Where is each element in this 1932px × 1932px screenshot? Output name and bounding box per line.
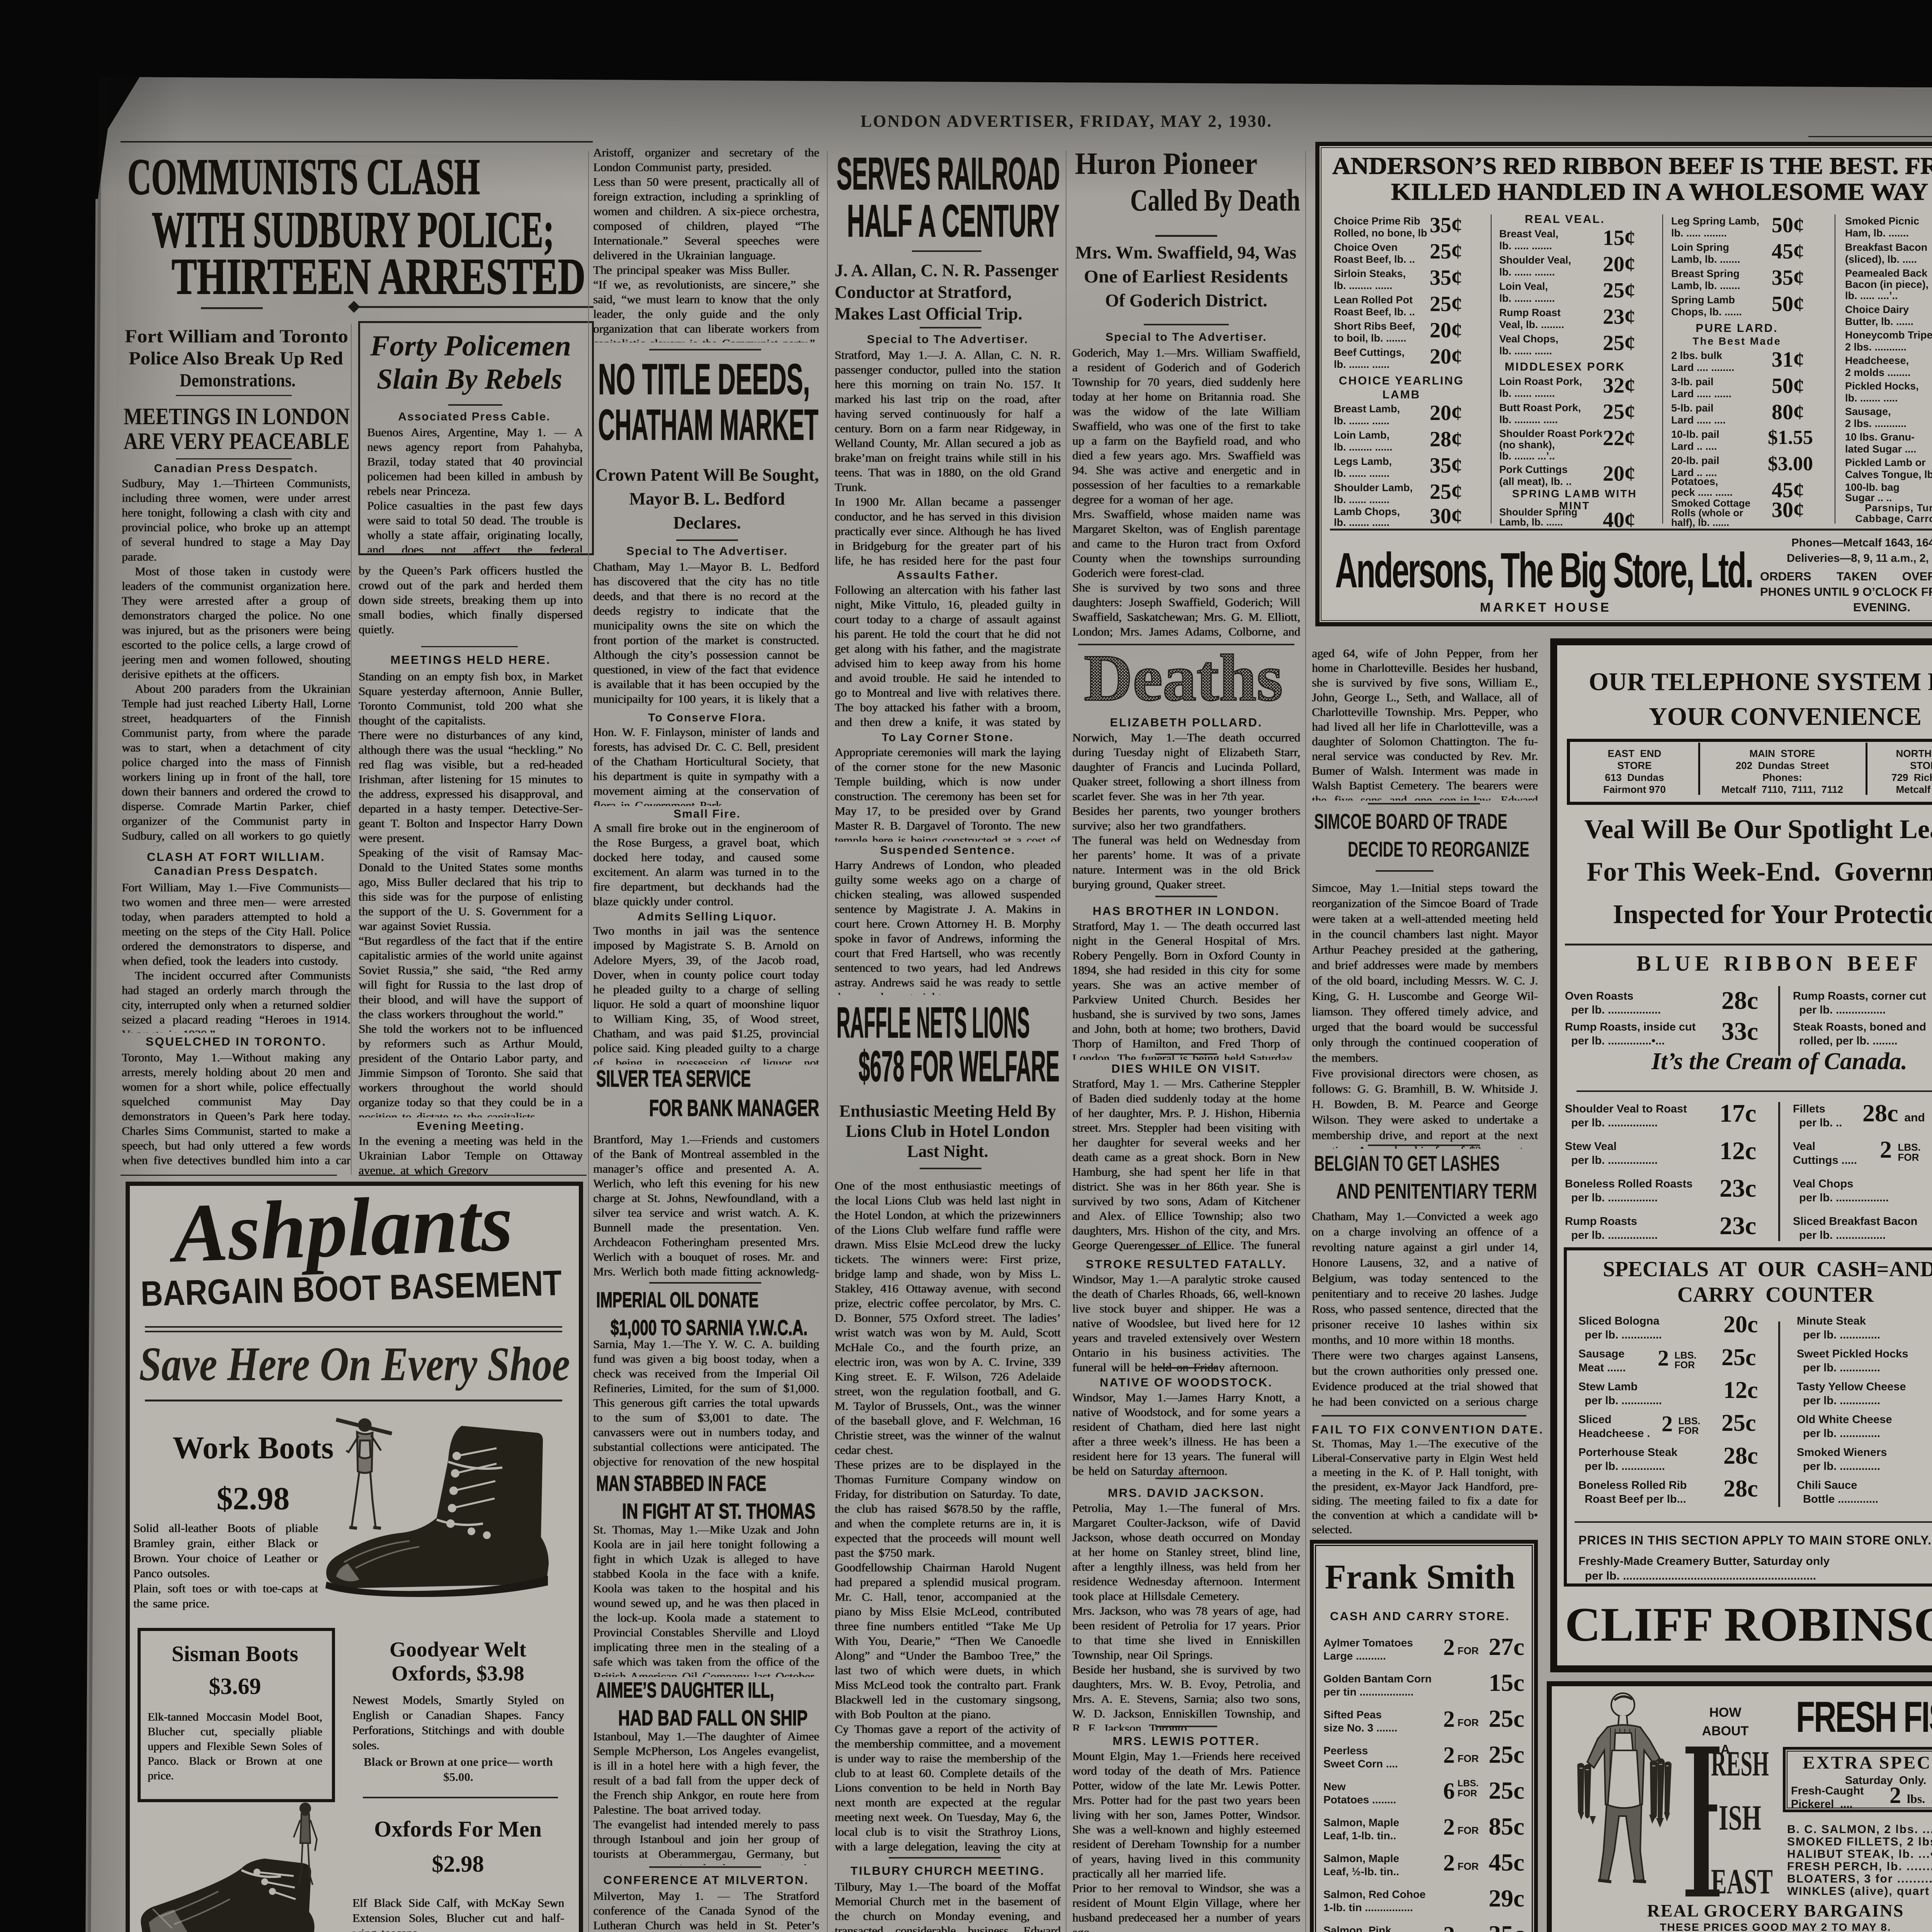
svg-text:Police Also Break Up Red: Police Also Break Up Red bbox=[129, 348, 343, 369]
svg-text:ANDERSON’S RED RIBBON BEEF IS: ANDERSON’S RED RIBBON BEEF IS THE BEST. … bbox=[1332, 153, 1932, 179]
svg-text:KILLED HANDLED IN A WHOLESOME: KILLED HANDLED IN A WHOLESOME WAY bbox=[1391, 179, 1928, 205]
svg-text:Called By Death: Called By Death bbox=[1130, 184, 1300, 218]
svg-text:THIRTEEN ARRESTED: THIRTEEN ARRESTED bbox=[172, 248, 585, 301]
svg-text:SERVES RAILROAD: SERVES RAILROAD bbox=[837, 148, 1060, 199]
svg-text:AND PENITENTIARY TERM: AND PENITENTIARY TERM bbox=[1336, 1179, 1537, 1203]
svg-text:Andersons, The Big Store, Ltd.: Andersons, The Big Store, Ltd. bbox=[1335, 543, 1752, 598]
svg-text:Slain By Rebels: Slain By Rebels bbox=[377, 363, 562, 395]
svg-text:FRESH FISH: FRESH FISH bbox=[1796, 1693, 1932, 1741]
svg-text:DECIDE TO REORGANIZE: DECIDE TO REORGANIZE bbox=[1348, 837, 1529, 861]
svg-text:ARE VERY PEACEABLE: ARE VERY PEACEABLE bbox=[124, 429, 350, 454]
svg-text:Save Here On Every Shoe: Save Here On Every Shoe bbox=[139, 1338, 570, 1391]
svg-text:RESH: RESH bbox=[1711, 1744, 1769, 1783]
svg-text:CHATHAM MARKET: CHATHAM MARKET bbox=[598, 401, 818, 446]
svg-text:BELGIAN TO GET LASHES: BELGIAN TO GET LASHES bbox=[1314, 1151, 1500, 1175]
svg-text:IMPERIAL OIL DONATE: IMPERIAL OIL DONATE bbox=[596, 1289, 759, 1312]
svg-text:RAFFLE NETS LIONS: RAFFLE NETS LIONS bbox=[837, 998, 1030, 1047]
svg-text:SILVER TEA SERVICE: SILVER TEA SERVICE bbox=[596, 1066, 751, 1092]
svg-text:One of Earliest Residents: One of Earliest Residents bbox=[1084, 267, 1288, 287]
svg-text:FOR BANK MANAGER: FOR BANK MANAGER bbox=[649, 1095, 819, 1121]
svg-text:CLIFF ROBINSON: CLIFF ROBINSON bbox=[1565, 1598, 1932, 1651]
svg-text:Fort William and Toronto: Fort William and Toronto bbox=[125, 326, 348, 347]
svg-text:BARGAIN BOOT BASEMENT: BARGAIN BOOT BASEMENT bbox=[140, 1264, 562, 1314]
svg-text:HALF A CENTURY: HALF A CENTURY bbox=[847, 196, 1060, 243]
svg-text:AIMEE’S DAUGHTER ILL,: AIMEE’S DAUGHTER ILL, bbox=[596, 1679, 774, 1702]
svg-text:$1,000 TO SARNIA Y.W.C.A.: $1,000 TO SARNIA Y.W.C.A. bbox=[611, 1315, 808, 1340]
svg-text:Forty Policemen: Forty Policemen bbox=[370, 332, 571, 362]
svg-text:Of Goderich District.: Of Goderich District. bbox=[1105, 291, 1267, 311]
svg-text:HAD BAD FALL ON SHIP: HAD BAD FALL ON SHIP bbox=[618, 1706, 808, 1730]
svg-text:MEETINGS IN LONDON: MEETINGS IN LONDON bbox=[124, 404, 350, 430]
svg-text:ISH: ISH bbox=[1719, 1798, 1761, 1837]
svg-text:COMMUNISTS CLASH: COMMUNISTS CLASH bbox=[128, 151, 480, 205]
svg-text:Mrs. Wm. Swaffield, 94, Was: Mrs. Wm. Swaffield, 94, Was bbox=[1075, 243, 1296, 263]
svg-text:SIMCOE BOARD OF TRADE: SIMCOE BOARD OF TRADE bbox=[1314, 810, 1507, 833]
svg-text:Deaths: Deaths bbox=[1084, 646, 1283, 714]
svg-text:IN FIGHT AT ST. THOMAS: IN FIGHT AT ST. THOMAS bbox=[622, 1499, 815, 1523]
svg-text:Demonstrations.: Demonstrations. bbox=[180, 370, 296, 391]
svg-text:NO TITLE DEEDS,: NO TITLE DEEDS, bbox=[598, 357, 810, 403]
svg-text:MAN STABBED IN FACE: MAN STABBED IN FACE bbox=[596, 1472, 766, 1495]
svg-text:Huron Pioneer: Huron Pioneer bbox=[1075, 149, 1257, 181]
svg-text:$678 FOR WELFARE: $678 FOR WELFARE bbox=[859, 1042, 1060, 1090]
svg-text:EAST: EAST bbox=[1711, 1862, 1773, 1901]
